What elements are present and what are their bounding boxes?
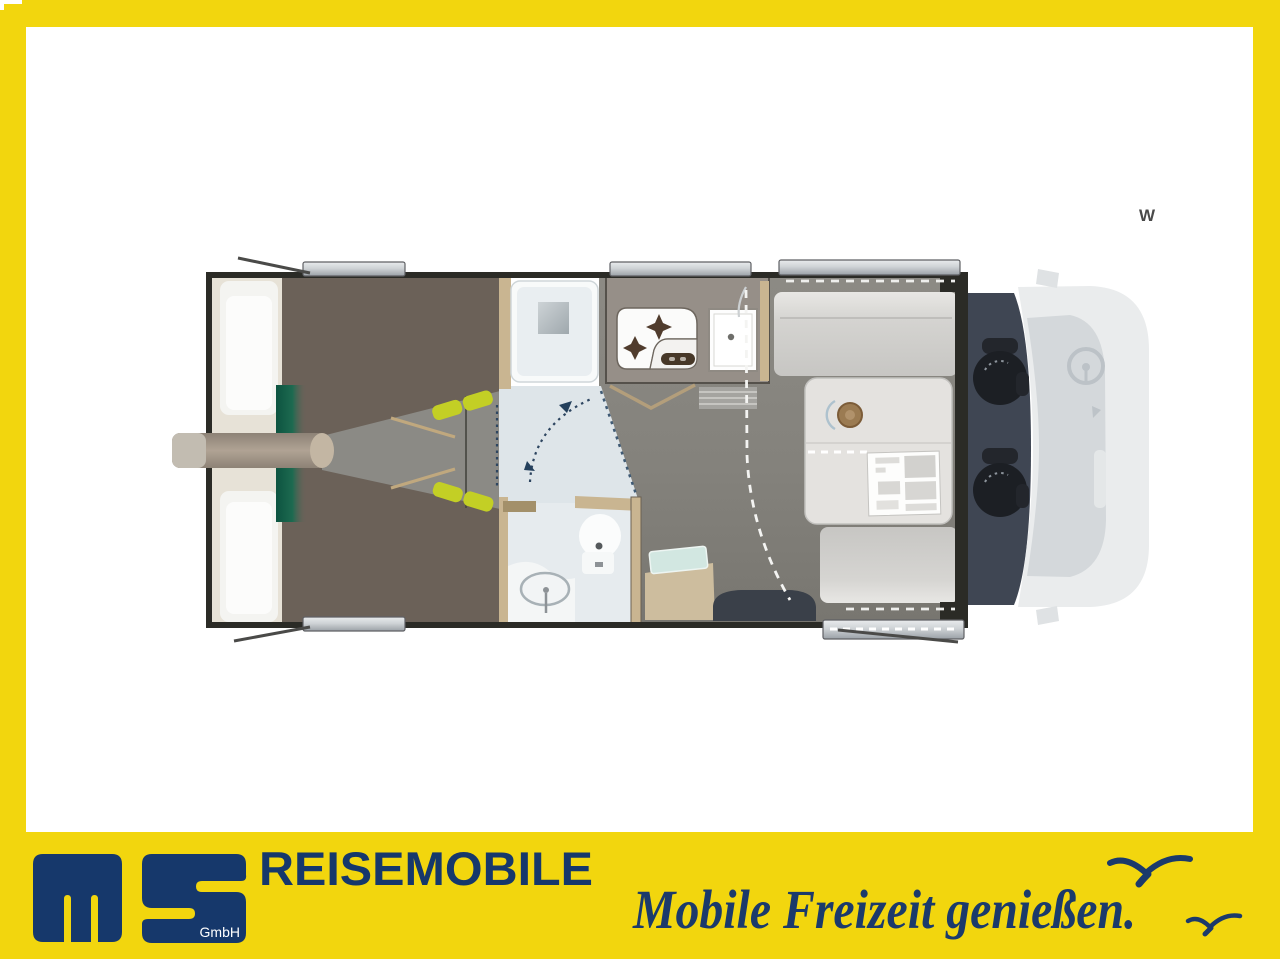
svg-text:Mobile Freizeit genießen.: Mobile Freizeit genießen. — [632, 879, 1136, 940]
svg-text:REISEMOBILE: REISEMOBILE — [259, 842, 593, 895]
svg-text:W: W — [1139, 206, 1156, 225]
svg-text:GmbH: GmbH — [200, 924, 240, 940]
